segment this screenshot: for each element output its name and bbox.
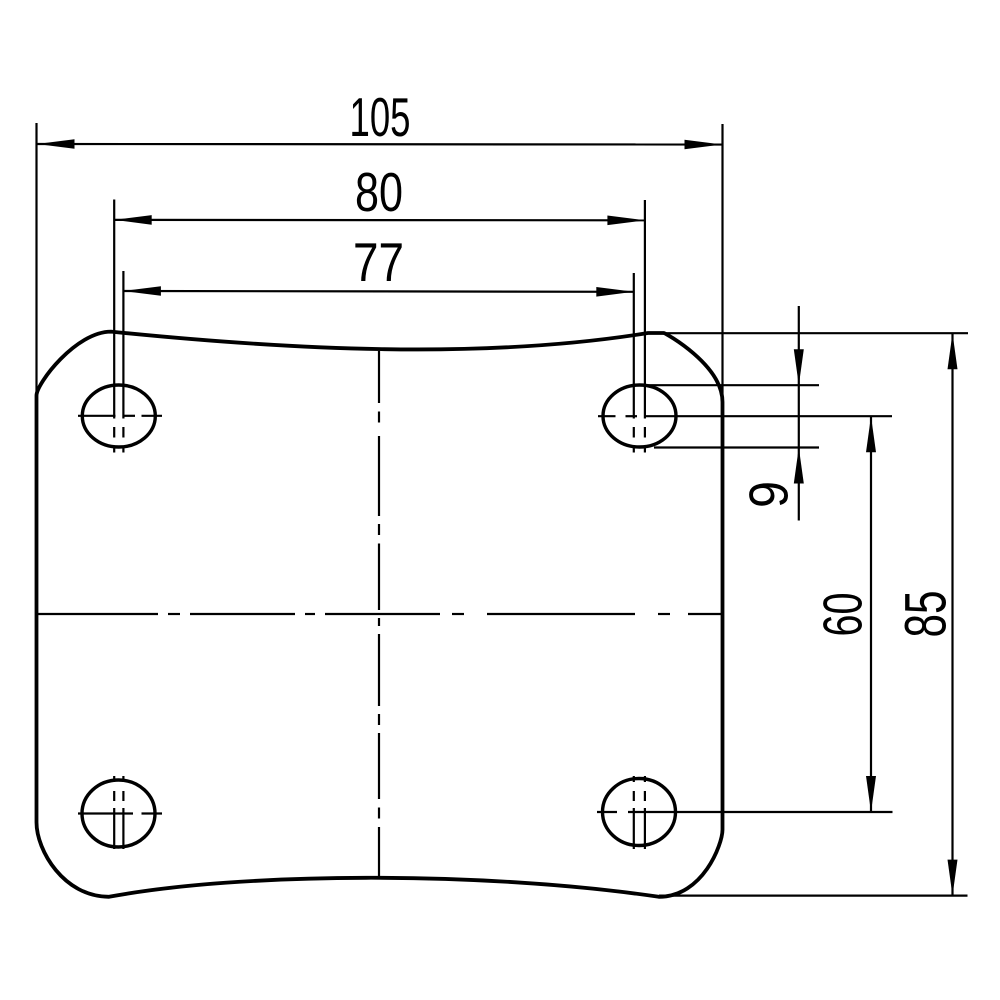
svg-text:60: 60 [812,593,874,637]
svg-text:9: 9 [738,481,800,508]
svg-text:105: 105 [350,86,411,148]
svg-text:77: 77 [353,231,404,293]
svg-text:80: 80 [355,161,403,223]
svg-text:85: 85 [894,591,959,638]
